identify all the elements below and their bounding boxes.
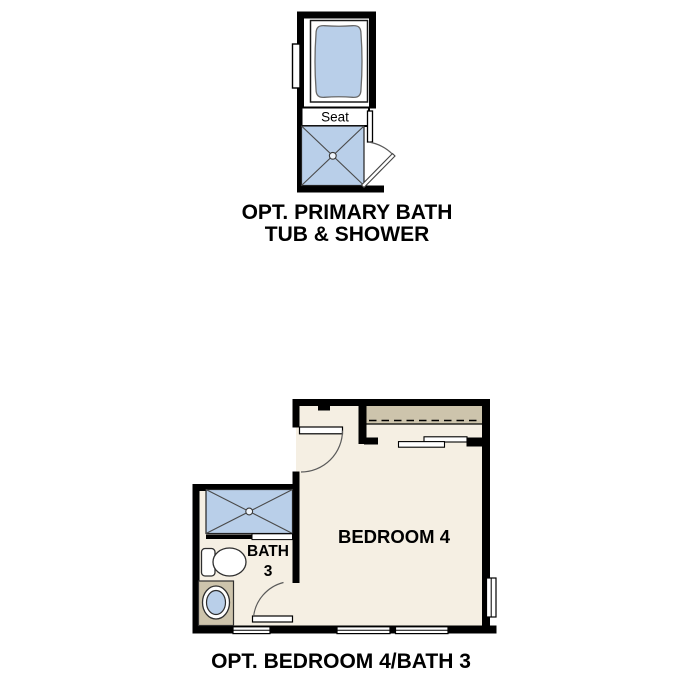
- bath-label-line1: BATH: [247, 543, 289, 560]
- bedroom-plan-title: OPT. BEDROOM 4/BATH 3: [211, 650, 471, 673]
- window-icon: [337, 627, 390, 634]
- shower-seat: Seat: [302, 108, 370, 127]
- shower-sliding-door: [252, 534, 293, 540]
- bedroom-label: BEDROOM 4: [338, 526, 451, 547]
- window-icon: [233, 627, 270, 634]
- window-icon: [396, 627, 449, 634]
- toilet-icon: [202, 548, 247, 576]
- seat-label: Seat: [321, 110, 349, 125]
- floor-plan-page: Seat OPT. PRIMARY BATH TUB & SHOWER: [0, 0, 687, 687]
- primary-shower: [302, 126, 365, 186]
- bath3-shower: [206, 490, 293, 540]
- closet: [364, 405, 483, 424]
- floor-plan-canvas: Seat OPT. PRIMARY BATH TUB & SHOWER: [0, 0, 687, 687]
- bath-label-line2: 3: [264, 563, 273, 580]
- shower-drain-icon: [329, 152, 336, 159]
- primary-bath-plan: Seat OPT. PRIMARY BATH TUB & SHOWER: [242, 12, 453, 247]
- window-icon: [487, 578, 497, 617]
- vanity-sink-icon: [199, 581, 234, 626]
- primary-bath-title-line2: TUB & SHOWER: [265, 223, 430, 246]
- bedroom4-bath3-plan: BEDROOM 4 BATH 3 OPT. BEDROOM 4/BATH 3: [193, 399, 497, 673]
- shower-door-track: [206, 535, 253, 540]
- primary-bath-title-line1: OPT. PRIMARY BATH: [242, 201, 453, 224]
- bathtub: [311, 21, 368, 103]
- window-icon: [293, 44, 301, 88]
- shower-drain-icon: [246, 508, 253, 515]
